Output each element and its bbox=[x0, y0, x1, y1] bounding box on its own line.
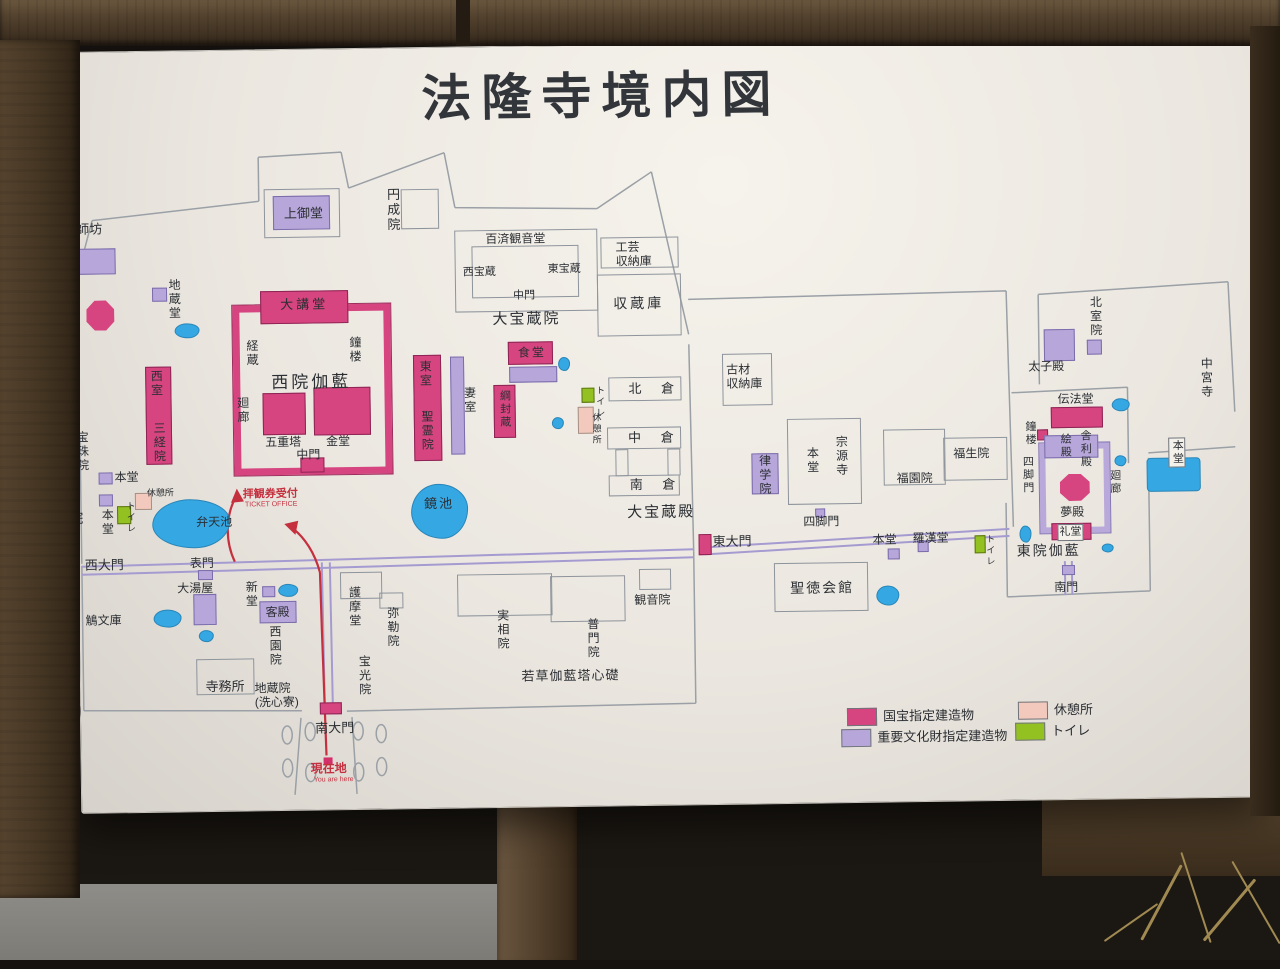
map-label: 鐘楼 bbox=[348, 336, 363, 364]
map-shape-pond bbox=[1102, 543, 1114, 552]
map-shape-outline bbox=[550, 575, 626, 622]
map-label: トイレ bbox=[984, 534, 995, 567]
map-label: 太子殿 bbox=[1028, 359, 1064, 374]
map-shape-pink bbox=[698, 534, 711, 555]
map-shape-pink bbox=[1051, 407, 1103, 429]
map-label: 四脚門 bbox=[1020, 456, 1034, 495]
map-label: 食堂 bbox=[518, 345, 546, 360]
map-label: 寺務所 bbox=[205, 679, 244, 695]
map-label: 拝観券受付 bbox=[243, 488, 298, 502]
map-label: 普門院 bbox=[586, 618, 601, 660]
legend-swatch bbox=[1018, 701, 1048, 719]
map-label: 北 倉 bbox=[628, 380, 682, 396]
map-shape-pink bbox=[320, 702, 342, 714]
map-shape-purple bbox=[198, 570, 213, 580]
map-shape-purple bbox=[1044, 329, 1075, 361]
map-label: 新堂 bbox=[244, 580, 259, 608]
map-shape-pond bbox=[411, 483, 469, 539]
map-label: 中 倉 bbox=[628, 429, 682, 445]
legend-swatch bbox=[1015, 722, 1045, 740]
map-label: 中宮寺 bbox=[1199, 357, 1214, 399]
map-shape-green bbox=[581, 388, 594, 403]
map-label: 地蔵院 (洗心寮) bbox=[254, 681, 298, 710]
signboard-wrapper: 法隆寺境内図 N bbox=[0, 0, 1280, 969]
map-label: 円成院 bbox=[385, 187, 401, 232]
map-label: 宝光院 bbox=[357, 655, 372, 697]
map-shape-pond bbox=[199, 630, 214, 642]
map-label: 綱封蔵 bbox=[497, 390, 511, 429]
map-label: 律学院 bbox=[757, 454, 772, 496]
map-label: 西園院 bbox=[268, 625, 283, 667]
map-label: 南 倉 bbox=[630, 476, 684, 492]
map-label: 本堂 bbox=[872, 532, 896, 546]
wood-beam-top bbox=[0, 0, 1280, 46]
map-label: TICKET OFFICE bbox=[245, 501, 297, 510]
map-label: 大湯屋 bbox=[177, 581, 213, 596]
map-label: 収蔵庫 bbox=[613, 295, 664, 312]
map-shape-purple bbox=[99, 494, 113, 506]
map-shape-purple bbox=[99, 472, 113, 484]
map-label: 経蔵 bbox=[245, 339, 260, 367]
map-shape-purple bbox=[509, 366, 557, 383]
map-shape-purple bbox=[193, 594, 216, 625]
map-label: 金堂 bbox=[326, 434, 350, 448]
map-label: 鏡池 bbox=[424, 496, 454, 512]
map-label: 大宝蔵殿 bbox=[627, 503, 695, 522]
legend-label: トイレ bbox=[1051, 723, 1090, 739]
map-shape-purple bbox=[152, 288, 167, 302]
map-label: You are here bbox=[314, 776, 354, 785]
map-label: 舎利殿 bbox=[1078, 430, 1092, 469]
map-label: 観音院 bbox=[634, 593, 670, 608]
map-label: 休憩所 bbox=[147, 488, 174, 499]
map-label: 廻廊 bbox=[1108, 469, 1121, 495]
map-label: 実相院 bbox=[495, 609, 510, 651]
map-label: 東宝蔵 bbox=[548, 263, 581, 276]
map-title: 法隆寺境内図 bbox=[421, 54, 782, 131]
legend-swatch bbox=[841, 729, 871, 747]
map-label: 上御堂 bbox=[284, 205, 323, 221]
map-label: 聖霊院 bbox=[420, 410, 435, 452]
map-shape-pink bbox=[313, 387, 371, 436]
map-label: 大宝蔵院 bbox=[492, 310, 560, 329]
map-label: 弥勒院 bbox=[385, 606, 400, 648]
legend-swatch bbox=[847, 708, 877, 726]
map-label: 西宝蔵 bbox=[463, 266, 496, 279]
map-shape-purple bbox=[262, 586, 275, 597]
wood-beam-gap bbox=[456, 0, 470, 46]
map-label: 東室 bbox=[418, 360, 433, 388]
map-label: 本堂 bbox=[1168, 437, 1185, 467]
map-label: 西院伽藍 bbox=[271, 372, 351, 393]
wood-post-left bbox=[0, 40, 80, 898]
legend-label: 重要文化財指定建造物 bbox=[877, 728, 1007, 745]
map-label: 工芸 収納庫 bbox=[615, 240, 651, 269]
map-shape-outline bbox=[787, 418, 862, 505]
map-label: 福園院 bbox=[897, 471, 933, 486]
map-label: 大講堂 bbox=[280, 296, 328, 312]
map-label: 鐘楼 bbox=[1023, 420, 1036, 446]
map-content: 法隆寺境内図 N bbox=[0, 0, 1280, 969]
map-label: 廻廊 bbox=[235, 396, 250, 424]
legend-label: 休憩所 bbox=[1054, 702, 1093, 718]
map-label: 東大門 bbox=[712, 533, 751, 549]
map-shape-purple bbox=[1062, 565, 1075, 575]
map-label: 東院伽藍 bbox=[1017, 542, 1081, 559]
map-shape-pond bbox=[1114, 455, 1126, 466]
map-label: 表門 bbox=[190, 556, 214, 570]
map-label: 客殿 bbox=[265, 605, 289, 619]
map-label: 鵤文庫 bbox=[86, 613, 122, 628]
map-label: 南大門 bbox=[315, 720, 354, 736]
map-shape-purple bbox=[1087, 340, 1102, 355]
legend-label: 国宝指定建造物 bbox=[883, 707, 974, 724]
map-label: 羅漢堂 bbox=[912, 531, 948, 546]
map-label: 妻室 bbox=[462, 386, 477, 414]
map-shape-outline bbox=[401, 189, 440, 230]
map-shape-outline bbox=[639, 569, 671, 590]
map-label: 本堂 bbox=[805, 446, 820, 474]
map-label: 地蔵堂 bbox=[167, 278, 182, 320]
map-shape-outline bbox=[667, 448, 680, 475]
map-label: トイレ bbox=[594, 385, 605, 418]
map-label: 福生院 bbox=[953, 446, 989, 461]
map-label: 伝法堂 bbox=[1058, 392, 1094, 407]
map-label: 四脚門 bbox=[803, 514, 839, 529]
map-label: 三経院 bbox=[152, 422, 167, 464]
map-shape-outline bbox=[615, 449, 628, 476]
map-label: 北室院 bbox=[1088, 296, 1103, 338]
map-label: 百済観音堂 bbox=[485, 231, 545, 246]
map-shape-pond bbox=[552, 417, 564, 429]
map-label: 礼堂 bbox=[1057, 524, 1083, 541]
map-label: 本堂 bbox=[100, 508, 115, 536]
map-shape-pond bbox=[558, 357, 570, 371]
map-label: 古材 収納庫 bbox=[726, 362, 762, 391]
map-shape-pond bbox=[876, 585, 899, 605]
map-label: 中門 bbox=[513, 289, 535, 302]
map-label: 絵殿 bbox=[1058, 433, 1071, 459]
map-label: 夢殿 bbox=[1060, 505, 1084, 519]
map-label: 本堂 bbox=[115, 470, 139, 484]
map-shape-purple bbox=[888, 548, 900, 559]
wood-post-right bbox=[1250, 26, 1280, 816]
map-label: 護摩堂 bbox=[347, 586, 362, 628]
map-label: 南門 bbox=[1054, 580, 1078, 594]
map-label: 西大門 bbox=[85, 557, 124, 573]
map-label: 西室 bbox=[149, 370, 164, 398]
map-label: 若草伽藍塔心礎 bbox=[521, 667, 619, 684]
map-shape-pond bbox=[1019, 526, 1031, 543]
map-label: 中門 bbox=[296, 447, 320, 461]
map-shape-pink bbox=[262, 393, 306, 436]
map-label: トイレ bbox=[125, 501, 136, 534]
map-label: 宗源寺 bbox=[834, 435, 849, 477]
map-label: 弁天池 bbox=[196, 515, 232, 530]
map-label: 現在地 bbox=[311, 761, 347, 776]
map-label: 聖徳会館 bbox=[790, 579, 854, 596]
